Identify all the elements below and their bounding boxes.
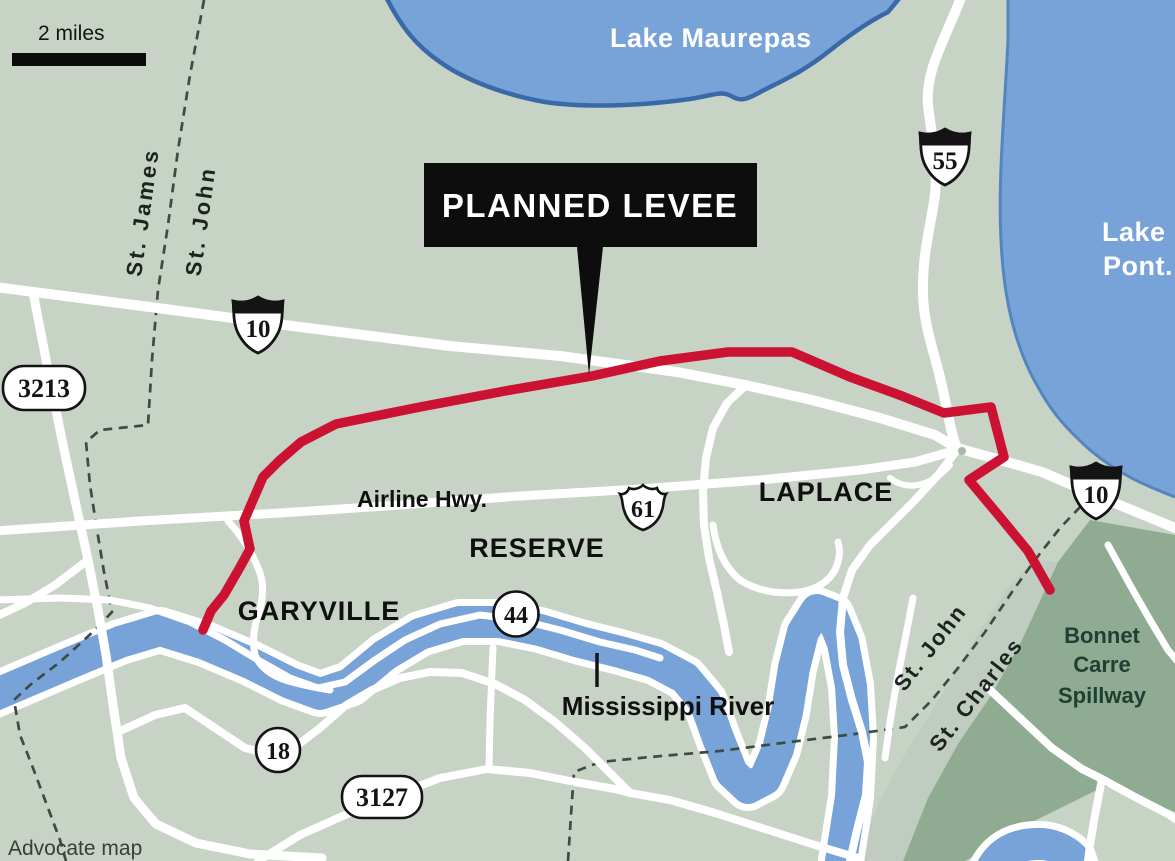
spillway-label-line1: Bonnet [1064, 623, 1140, 648]
la-18-shield: 18 [256, 728, 300, 772]
svg-text:55: 55 [933, 148, 958, 175]
i10-i55-junction-dot [958, 447, 966, 455]
town-label-reserve: RESERVE [469, 533, 605, 563]
river-corner-water [990, 844, 1078, 861]
svg-text:44: 44 [504, 603, 528, 629]
svg-text:3213: 3213 [18, 374, 70, 403]
lake-pont-label-line2: Pont. [1103, 251, 1173, 281]
la-44-shield: 44 [494, 592, 539, 637]
levee-map: PLANNED LEVEE 2 miles Lake Maurepas Lake… [0, 0, 1175, 861]
la-3213-shield: 3213 [3, 366, 85, 410]
la-3127-shield: 3127 [342, 776, 422, 818]
street-label-airline-hwy: Airline Hwy. [357, 486, 487, 512]
svg-text:3127: 3127 [356, 783, 408, 812]
callout-label: PLANNED LEVEE [442, 187, 738, 224]
map-canvas: PLANNED LEVEE 2 miles Lake Maurepas Lake… [0, 0, 1175, 861]
town-label-garyville: GARYVILLE [238, 596, 401, 626]
lake-pont-label-line1: Lake [1102, 217, 1166, 247]
svg-text:10: 10 [1084, 482, 1109, 509]
spillway-label-line3: Spillway [1058, 683, 1147, 708]
svg-text:18: 18 [266, 739, 290, 765]
svg-text:10: 10 [246, 316, 271, 343]
lake-maurepas-label: Lake Maurepas [610, 23, 812, 53]
spillway-label-line2: Carre [1073, 652, 1130, 677]
road-3127-connector [489, 648, 493, 769]
scale-bar [12, 53, 146, 66]
mississippi-river-label: Mississippi River [562, 691, 774, 721]
map-credit: Advocate map [8, 837, 142, 860]
svg-text:61: 61 [631, 497, 655, 523]
town-label-laplace: LAPLACE [759, 477, 894, 507]
scale-label: 2 miles [38, 22, 105, 45]
